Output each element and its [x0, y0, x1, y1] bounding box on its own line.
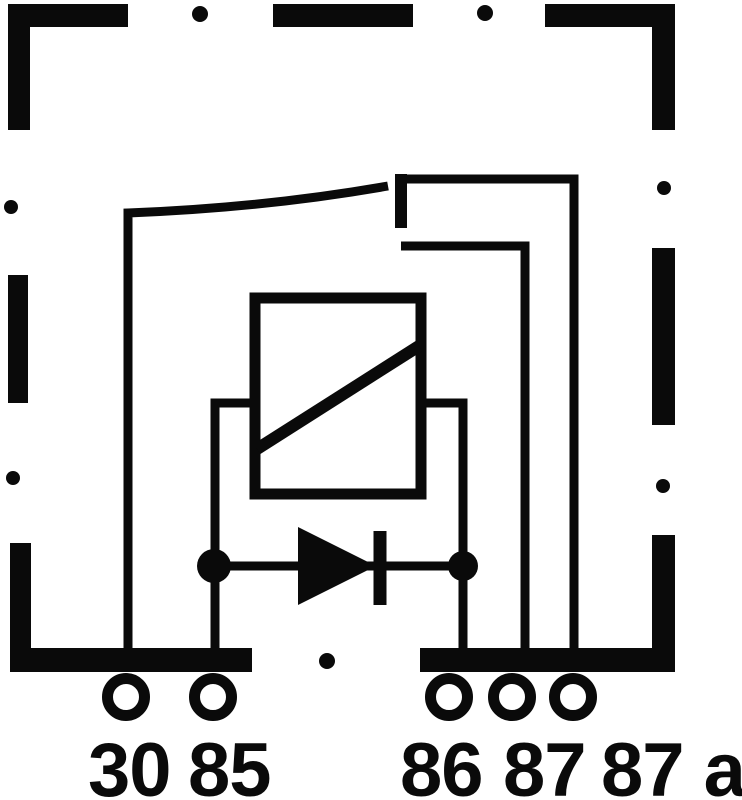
- pin-30: [108, 679, 145, 716]
- label-terminal-86: 86: [400, 728, 483, 800]
- diode-symbol-icon: [298, 527, 380, 605]
- housing-dash-left: [8, 275, 28, 403]
- coil-left-wire-85: [215, 403, 252, 648]
- housing-dot-top-1: [192, 6, 208, 22]
- housing-dot-top-2: [477, 5, 493, 21]
- housing-dot-right-1: [657, 181, 671, 195]
- housing-dash-right: [652, 248, 675, 425]
- pin-87: [494, 679, 531, 716]
- housing-corner-top-left: [8, 4, 128, 130]
- terminal-pins: [108, 679, 592, 716]
- housing-corner-top-right: [545, 4, 675, 130]
- junction-dot-left: [197, 549, 231, 583]
- terminal-labels: 30 85 86 87 87 a: [88, 728, 742, 800]
- housing-dot-left-2: [6, 471, 20, 485]
- label-terminal-30: 30: [88, 728, 171, 800]
- relay-schematic-page: 30 85 86 87 87 a: [0, 0, 742, 800]
- pin-86: [431, 679, 468, 716]
- relay-schematic-canvas: 30 85 86 87 87 a: [0, 0, 742, 800]
- label-terminal-85: 85: [188, 728, 271, 800]
- housing-dash-top: [273, 4, 413, 27]
- pin-85: [195, 679, 232, 716]
- pin-87a: [555, 679, 592, 716]
- label-terminal-87: 87: [503, 728, 586, 800]
- relay-coil-symbol: [255, 298, 421, 494]
- label-terminal-87a: 87 a: [601, 728, 742, 800]
- housing-dot-bottom: [319, 653, 335, 669]
- housing-dot-right-2: [656, 479, 670, 493]
- coil-right-wire-86: [424, 403, 463, 648]
- diode-anode-triangle: [298, 527, 376, 605]
- housing-dot-left-1: [4, 200, 18, 214]
- junction-dot-right: [448, 551, 478, 581]
